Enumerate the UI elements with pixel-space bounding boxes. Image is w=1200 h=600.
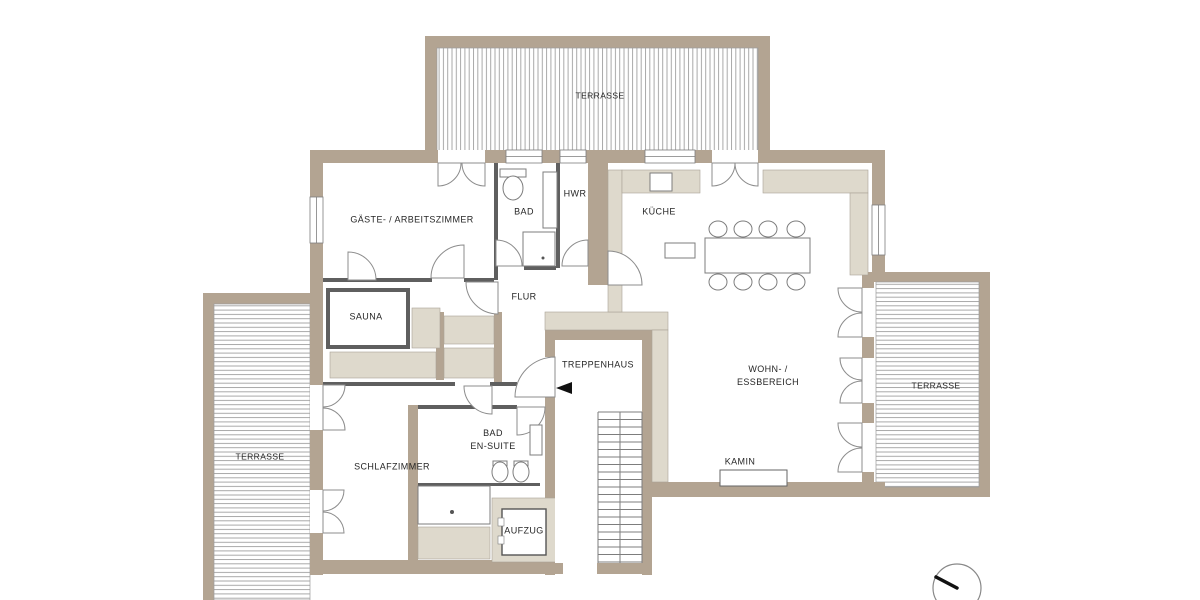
bath-cabinet bbox=[543, 172, 557, 228]
room-label-bad-ensuite-line1: BAD bbox=[470, 427, 515, 440]
ensuite-closet bbox=[418, 527, 490, 559]
floor-plan: TERRASSE GÄSTE- / ARBEITSZIMMER BAD HWR … bbox=[0, 0, 1200, 600]
sauna-bench bbox=[330, 352, 436, 378]
closet-2 bbox=[444, 348, 494, 378]
room-label-kamin: KAMIN bbox=[725, 456, 756, 469]
room-label-bad: BAD bbox=[514, 206, 534, 219]
ensuite-shower bbox=[418, 486, 490, 524]
kitchen-counter-corner bbox=[763, 170, 868, 193]
chair bbox=[759, 274, 777, 290]
shower bbox=[523, 232, 555, 266]
chair bbox=[787, 274, 805, 290]
chair bbox=[734, 221, 752, 237]
room-label-terrasse-left: TERRASSE bbox=[235, 451, 284, 464]
elevator-door-notch bbox=[498, 536, 504, 544]
fireplace bbox=[720, 470, 787, 486]
shower-panel bbox=[530, 425, 542, 455]
room-label-bad-ensuite: BAD EN-SUITE bbox=[470, 427, 515, 453]
room-label-flur: FLUR bbox=[511, 291, 536, 304]
room-label-kueche: KÜCHE bbox=[642, 206, 676, 219]
room-label-terrasse-right: TERRASSE bbox=[911, 380, 960, 393]
wc-icon bbox=[513, 462, 529, 482]
room-label-wohn-line2: ESSBEREICH bbox=[737, 376, 799, 389]
wc-icon bbox=[492, 462, 508, 482]
closet-1 bbox=[444, 316, 494, 344]
chair bbox=[787, 221, 805, 237]
toilet-icon bbox=[503, 176, 523, 200]
stair-shaft-band-top bbox=[545, 312, 668, 330]
shower-drain bbox=[450, 510, 454, 514]
shower-drain bbox=[542, 257, 545, 260]
room-label-bad-ensuite-line2: EN-SUITE bbox=[470, 440, 515, 453]
chair bbox=[759, 221, 777, 237]
room-label-schlafzimmer: SCHLAFZIMMER bbox=[354, 461, 430, 474]
island-sink bbox=[665, 243, 695, 258]
room-label-hwr: HWR bbox=[564, 188, 587, 201]
room-label-terrasse-top: TERRASSE bbox=[575, 90, 624, 103]
dining-table bbox=[705, 238, 810, 273]
chair bbox=[734, 274, 752, 290]
room-label-gaeste: GÄSTE- / ARBEITSZIMMER bbox=[350, 214, 473, 227]
room-label-treppenhaus: TREPPENHAUS bbox=[562, 359, 634, 372]
chair bbox=[709, 274, 727, 290]
room-label-wohn-line1: WOHN- / bbox=[737, 363, 799, 376]
sauna-heater bbox=[412, 308, 440, 348]
stair-shaft-band-right bbox=[652, 330, 668, 482]
kitchen-counter-right bbox=[850, 193, 868, 275]
stove bbox=[650, 173, 672, 191]
north-compass-icon bbox=[933, 564, 981, 600]
room-label-sauna: SAUNA bbox=[349, 311, 382, 324]
chair bbox=[709, 221, 727, 237]
room-label-aufzug: AUFZUG bbox=[504, 525, 543, 538]
terrace-left bbox=[203, 293, 310, 600]
kitchen-tall-cabinets bbox=[608, 170, 622, 312]
elevator-door-notch bbox=[498, 518, 504, 526]
staircase bbox=[555, 340, 642, 563]
room-label-wohn-essbereich: WOHN- / ESSBEREICH bbox=[737, 363, 799, 389]
